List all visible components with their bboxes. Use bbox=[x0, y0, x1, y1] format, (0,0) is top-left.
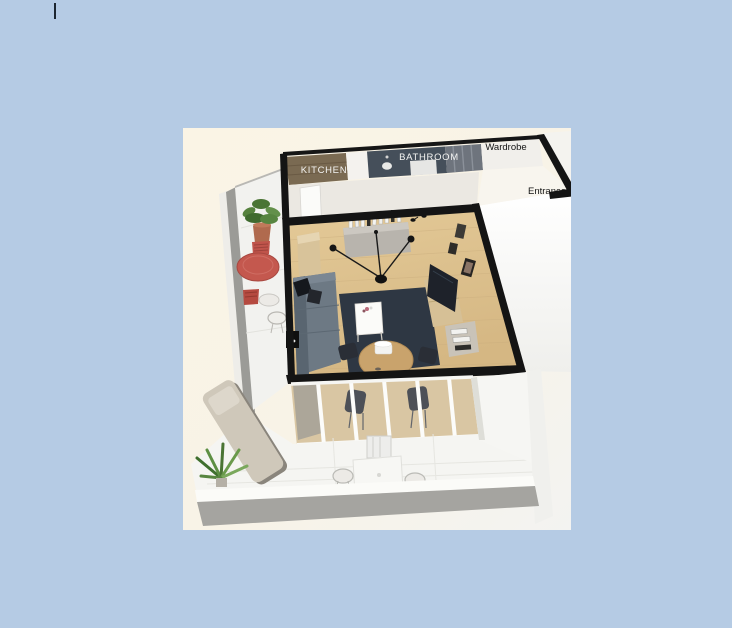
balcony-red-table bbox=[237, 253, 279, 281]
toilet bbox=[382, 162, 392, 170]
wardrobe-label: Wardrobe bbox=[485, 142, 526, 153]
sofa-pillow bbox=[307, 289, 322, 304]
document-canvas: KITCHEN BATHROOM Wardrobe Entrance bbox=[0, 0, 732, 628]
terrace-chair bbox=[367, 436, 391, 458]
text-cursor bbox=[54, 3, 56, 19]
entrance-label: Entrance bbox=[528, 186, 566, 197]
bathroom-label: BATHROOM bbox=[399, 152, 459, 163]
floorplan-svg: KITCHEN BATHROOM Wardrobe Entrance bbox=[183, 128, 571, 530]
fridge bbox=[346, 152, 369, 181]
terrace-chair bbox=[333, 469, 353, 483]
floorplan-image[interactable]: KITCHEN BATHROOM Wardrobe Entrance bbox=[183, 128, 571, 530]
book-shelf bbox=[445, 321, 479, 357]
kitchen-label: KITCHEN bbox=[301, 165, 348, 176]
